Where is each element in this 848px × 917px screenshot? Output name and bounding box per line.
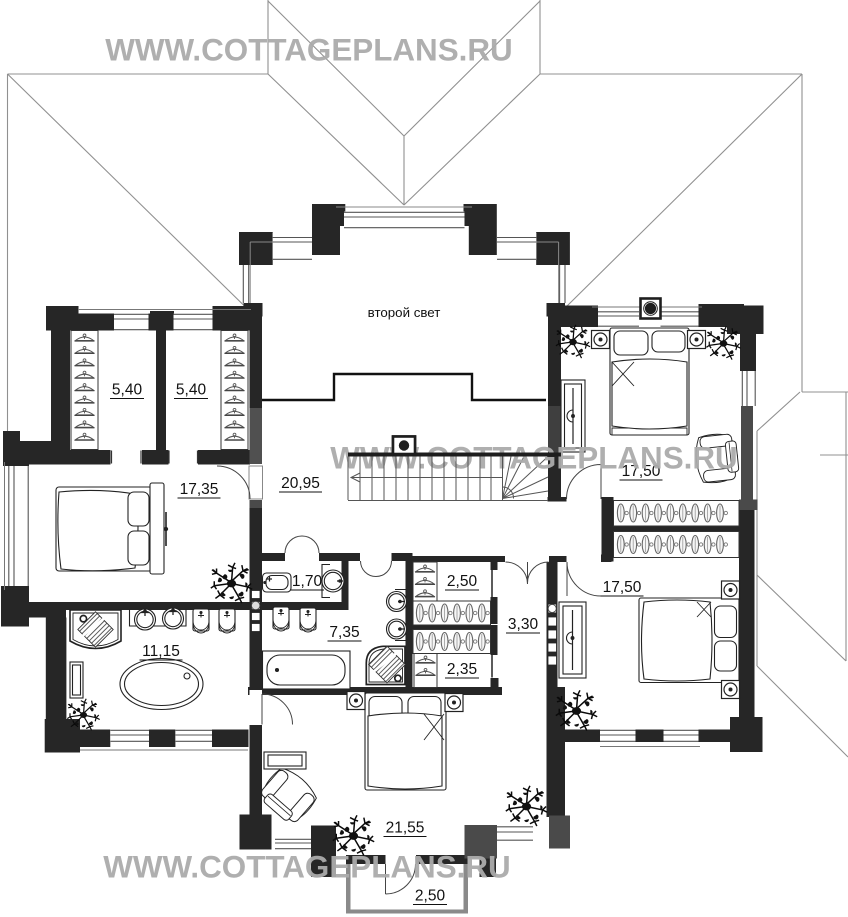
svg-text:2,50: 2,50 <box>415 888 446 905</box>
svg-text:20,95: 20,95 <box>281 475 320 492</box>
svg-text:второй свет: второй свет <box>368 305 441 320</box>
svg-text:WWW.COTTAGEPLANS.RU: WWW.COTTAGEPLANS.RU <box>330 441 737 476</box>
svg-text:17,35: 17,35 <box>180 481 219 498</box>
svg-text:5,40: 5,40 <box>176 382 207 399</box>
svg-text:11,15: 11,15 <box>142 643 180 660</box>
svg-text:7,35: 7,35 <box>329 624 359 641</box>
svg-text:WWW.COTTAGEPLANS.RU: WWW.COTTAGEPLANS.RU <box>103 850 510 885</box>
svg-text:5,40: 5,40 <box>112 382 143 399</box>
svg-text:1,70: 1,70 <box>292 573 323 590</box>
svg-text:2,35: 2,35 <box>447 661 477 678</box>
svg-text:3,30: 3,30 <box>508 616 539 633</box>
svg-text:WWW.COTTAGEPLANS.RU: WWW.COTTAGEPLANS.RU <box>105 33 512 68</box>
svg-text:17,50: 17,50 <box>603 579 642 596</box>
svg-text:2,50: 2,50 <box>447 573 478 590</box>
svg-text:21,55: 21,55 <box>386 820 425 837</box>
